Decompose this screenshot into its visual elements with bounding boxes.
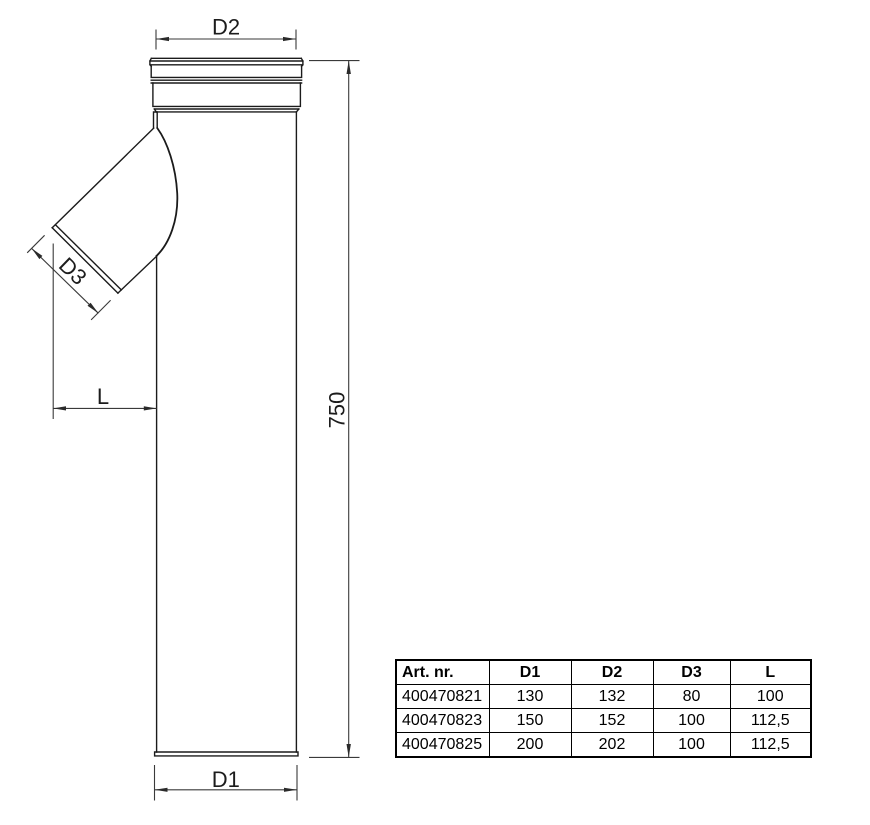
branch-joint-notch xyxy=(154,112,158,128)
dimension-labels: D2 750 D3 L D1 xyxy=(54,15,349,792)
l-arrow-right xyxy=(144,406,157,410)
socket-outline xyxy=(150,58,303,112)
table-header-d1: D1 xyxy=(489,660,571,685)
d2-arrow-right xyxy=(283,37,296,41)
table-cell-d3: 100 xyxy=(653,733,730,758)
table-cell-l: 112,5 xyxy=(730,733,811,758)
pipe-bottom-band xyxy=(155,752,298,756)
table-cell-l: 100 xyxy=(730,685,811,709)
d2-arrow-left xyxy=(156,37,169,41)
label-l: L xyxy=(97,384,109,409)
table-row: 400470823 150 152 100 112,5 xyxy=(396,709,811,733)
spec-table: Art. nr. D1 D2 D3 L 400470821 130 132 80… xyxy=(395,659,812,758)
socket-body xyxy=(153,83,301,112)
label-d3: D3 xyxy=(54,252,92,290)
label-750: 750 xyxy=(325,392,350,429)
table-cell-d2: 152 xyxy=(571,709,653,733)
branch-pipe-intersection-curve xyxy=(157,128,178,256)
table-cell-d3: 80 xyxy=(653,685,730,709)
d1-arrow-right xyxy=(284,788,297,792)
table-cell-l: 112,5 xyxy=(730,709,811,733)
socket-groove-lines xyxy=(151,80,301,83)
table-cell-art-nr: 400470821 xyxy=(396,685,489,709)
dim750-arrow-down xyxy=(347,744,351,757)
table-header-art-nr: Art. nr. xyxy=(396,660,489,685)
l-arrow-left xyxy=(53,406,66,410)
table-row: 400470825 200 202 100 112,5 xyxy=(396,733,811,758)
table-row: 400470821 130 132 80 100 xyxy=(396,685,811,709)
table-header-d2: D2 xyxy=(571,660,653,685)
socket-top-bead xyxy=(150,58,303,66)
table-header-d3: D3 xyxy=(653,660,730,685)
branch-lower-edge xyxy=(118,256,157,293)
drawing-canvas: D2 750 D3 L D1 Art. nr. D1 D2 D3 L xyxy=(0,0,870,825)
table-cell-art-nr: 400470825 xyxy=(396,733,489,758)
table-header-row: Art. nr. D1 D2 D3 L xyxy=(396,660,811,685)
branch-face-outer xyxy=(52,228,118,293)
table-cell-d3: 100 xyxy=(653,709,730,733)
table-cell-art-nr: 400470823 xyxy=(396,709,489,733)
branch-upper-edge xyxy=(52,128,154,228)
dimension-lines xyxy=(27,30,359,801)
table-cell-d1: 130 xyxy=(489,685,571,709)
label-d1: D1 xyxy=(212,767,240,792)
table-cell-d1: 200 xyxy=(489,733,571,758)
table-cell-d2: 132 xyxy=(571,685,653,709)
fitting-outline xyxy=(52,58,303,756)
dimension-arrowheads xyxy=(32,37,351,792)
socket-upper-band xyxy=(151,66,301,77)
dim750-arrow-up xyxy=(347,61,351,74)
label-d2: D2 xyxy=(212,15,240,40)
d3-arrow-upper xyxy=(32,248,43,259)
d1-arrow-left xyxy=(155,788,168,792)
table-header-l: L xyxy=(730,660,811,685)
table-cell-d2: 202 xyxy=(571,733,653,758)
d3-arrow-lower xyxy=(88,303,99,314)
table-cell-d1: 150 xyxy=(489,709,571,733)
